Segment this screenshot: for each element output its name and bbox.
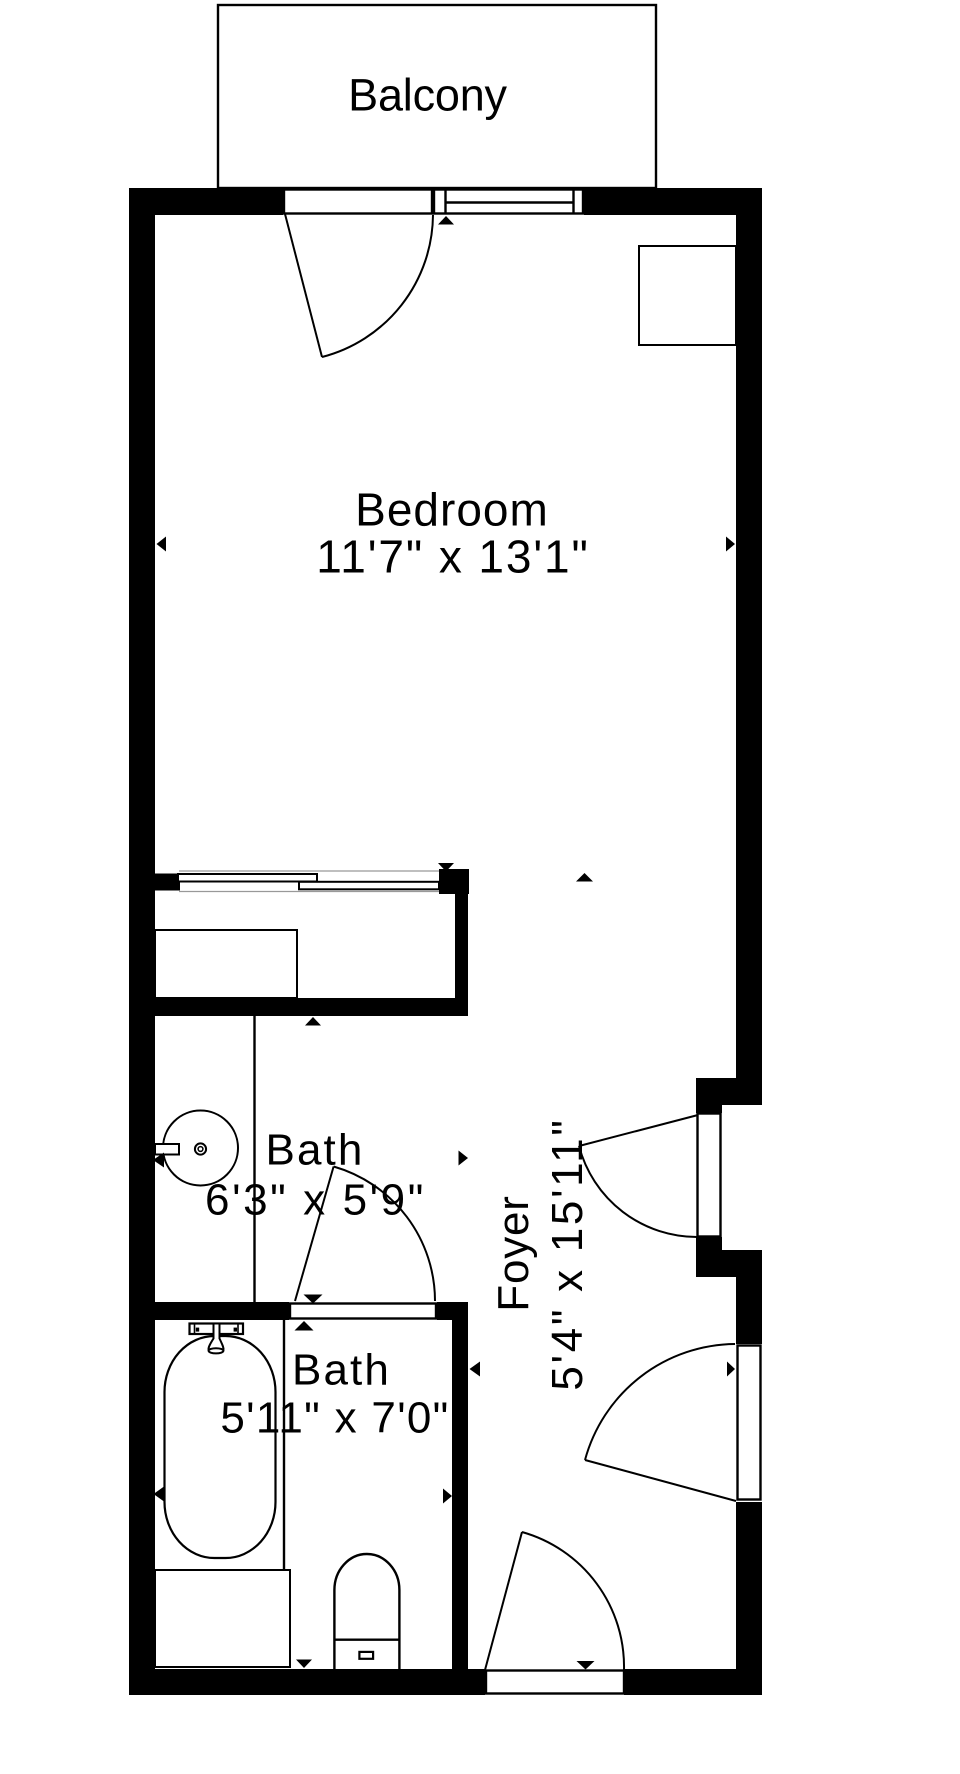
svg-text:5'4" x 15'11": 5'4" x 15'11" (543, 1117, 592, 1390)
svg-text:5'11" x 7'0": 5'11" x 7'0" (220, 1394, 449, 1443)
svg-text:Foyer: Foyer (489, 1195, 538, 1311)
svg-text:Bedroom: Bedroom (355, 484, 549, 536)
svg-text:Bath: Bath (266, 1126, 365, 1175)
svg-text:Balcony: Balcony (348, 70, 507, 121)
svg-text:6'3" x 5'9": 6'3" x 5'9" (205, 1176, 426, 1225)
svg-text:11'7" x 13'1": 11'7" x 13'1" (316, 531, 590, 583)
svg-text:Bath: Bath (292, 1346, 391, 1395)
